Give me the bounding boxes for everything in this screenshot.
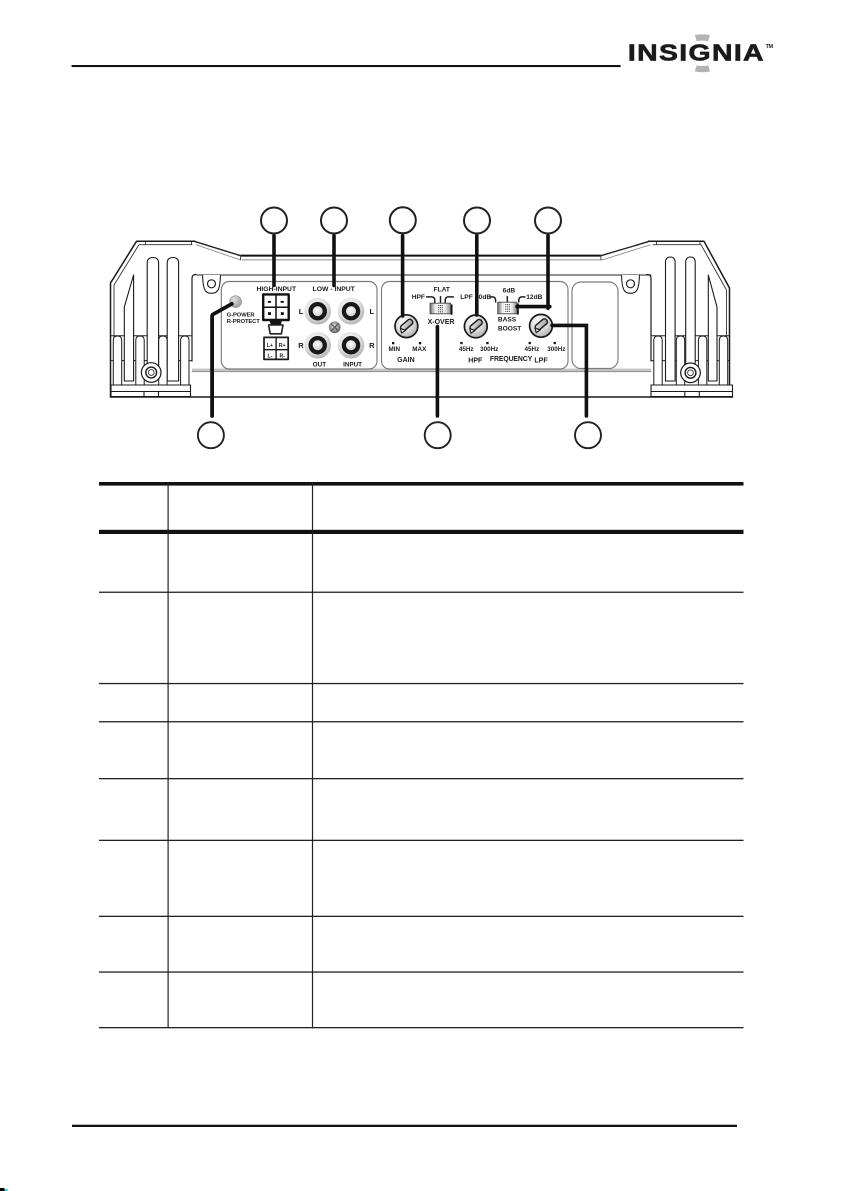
svg-text:R-PROTECT: R-PROTECT (227, 319, 260, 325)
svg-text:L+: L+ (267, 343, 273, 349)
svg-text:HPF: HPF (468, 357, 483, 364)
svg-text:L: L (370, 307, 375, 316)
svg-text:MAX: MAX (412, 346, 427, 353)
svg-text:45Hz: 45Hz (525, 346, 540, 353)
svg-text:LPF: LPF (534, 357, 548, 364)
svg-text:GAIN: GAIN (397, 357, 415, 364)
svg-text:G-POWER: G-POWER (227, 313, 256, 319)
svg-text:FLAT: FLAT (434, 287, 450, 294)
svg-text:BASS: BASS (498, 317, 517, 324)
svg-text:R+: R+ (279, 343, 286, 349)
svg-text:INSIGNIA: INSIGNIA (628, 39, 765, 66)
svg-text:INPUT: INPUT (343, 362, 362, 369)
svg-text:HPF: HPF (412, 294, 425, 301)
svg-text:HIGH-INPUT: HIGH-INPUT (256, 286, 296, 293)
svg-text:BOOST: BOOST (498, 326, 521, 333)
svg-text:R: R (369, 341, 375, 350)
svg-text:FREQUENCY: FREQUENCY (490, 356, 533, 363)
svg-text:45Hz: 45Hz (459, 346, 474, 353)
svg-text:LPF: LPF (460, 294, 472, 301)
svg-text:L: L (299, 307, 304, 316)
svg-text:6dB: 6dB (503, 288, 516, 295)
svg-text:X-OVER: X-OVER (428, 319, 455, 326)
svg-text:12dB: 12dB (526, 294, 542, 301)
svg-text:MIN: MIN (389, 346, 401, 353)
svg-text:300Hz: 300Hz (547, 346, 565, 353)
svg-text:OUT: OUT (313, 362, 326, 369)
svg-text:TM: TM (766, 44, 774, 50)
svg-text:R-: R- (279, 354, 285, 360)
svg-text:300Hz: 300Hz (480, 346, 498, 353)
svg-text:R: R (298, 341, 304, 350)
svg-text:L-: L- (268, 354, 273, 360)
